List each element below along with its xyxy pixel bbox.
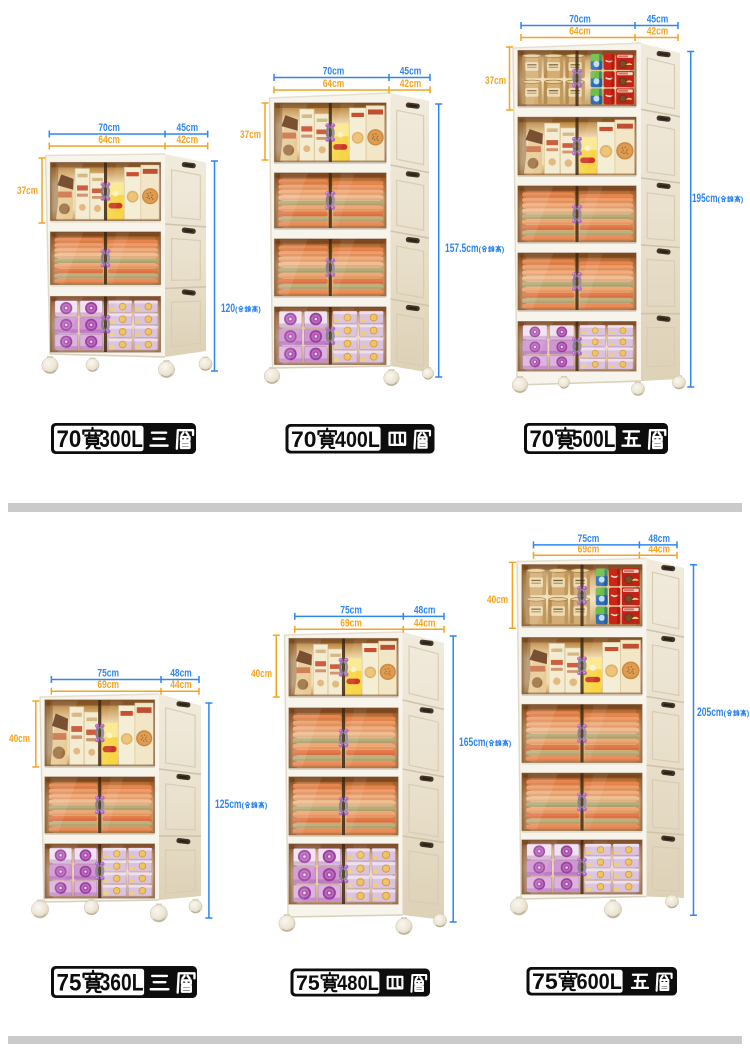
svg-text:40cm: 40cm	[487, 594, 508, 606]
svg-text:64cm: 64cm	[323, 78, 345, 90]
svg-text:70cm: 70cm	[569, 14, 591, 26]
svg-text:40cm: 40cm	[251, 668, 272, 680]
svg-text:42cm: 42cm	[400, 78, 422, 90]
svg-text:75: 75	[57, 970, 82, 997]
svg-text:480L: 480L	[337, 971, 379, 995]
svg-text:500L: 500L	[572, 427, 615, 453]
svg-text:75: 75	[532, 969, 558, 994]
svg-text:64cm: 64cm	[569, 26, 591, 38]
svg-text:69cm: 69cm	[578, 543, 600, 555]
svg-text:125cm: 125cm	[215, 798, 242, 811]
svg-text:120: 120	[221, 302, 235, 315]
svg-text:40cm: 40cm	[9, 733, 30, 745]
svg-text:75: 75	[296, 971, 320, 995]
svg-text:75cm: 75cm	[97, 668, 119, 680]
svg-text:195cm: 195cm	[692, 192, 718, 205]
svg-text:44cm: 44cm	[648, 543, 670, 555]
svg-text:70: 70	[291, 427, 317, 452]
svg-text:37cm: 37cm	[485, 75, 506, 87]
svg-text:45cm: 45cm	[177, 122, 199, 134]
svg-text:45cm: 45cm	[647, 14, 669, 26]
svg-text:42cm: 42cm	[177, 134, 199, 146]
svg-text:205cm: 205cm	[697, 706, 724, 719]
svg-text:300L: 300L	[99, 427, 143, 453]
svg-text:37cm: 37cm	[240, 129, 261, 141]
svg-text:157.5cm: 157.5cm	[445, 242, 479, 255]
svg-text:70cm: 70cm	[323, 66, 345, 78]
svg-text:75cm: 75cm	[340, 604, 362, 616]
svg-text:37cm: 37cm	[17, 185, 38, 197]
svg-text:400L: 400L	[335, 427, 380, 452]
svg-text:44cm: 44cm	[414, 617, 436, 629]
svg-text:69cm: 69cm	[97, 679, 119, 691]
svg-text:64cm: 64cm	[98, 134, 120, 146]
svg-text:45cm: 45cm	[400, 66, 422, 78]
svg-text:48cm: 48cm	[170, 668, 192, 680]
svg-text:42cm: 42cm	[647, 26, 669, 38]
svg-text:600L: 600L	[577, 969, 622, 994]
svg-text:69cm: 69cm	[340, 617, 362, 629]
svg-text:360L: 360L	[100, 970, 144, 997]
svg-text:44cm: 44cm	[170, 679, 192, 691]
svg-text:70cm: 70cm	[98, 122, 120, 134]
svg-text:70: 70	[57, 427, 82, 453]
svg-text:48cm: 48cm	[414, 604, 436, 616]
svg-text:165cm: 165cm	[459, 736, 486, 749]
svg-text:70: 70	[530, 427, 555, 453]
